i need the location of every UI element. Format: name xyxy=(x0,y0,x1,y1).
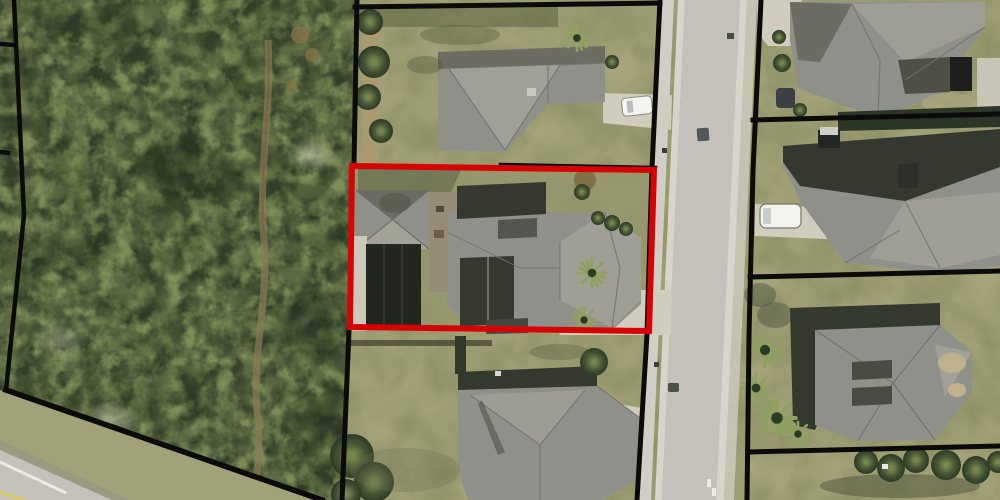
hedge xyxy=(455,336,466,374)
dark-car xyxy=(776,88,795,108)
white-car-driveway-north xyxy=(621,95,653,116)
object-on-road xyxy=(697,128,710,142)
tree-shadow xyxy=(757,302,793,328)
tree xyxy=(369,119,393,143)
lawn-shadow xyxy=(350,448,460,492)
roadside-speck xyxy=(727,33,734,39)
palm-tree xyxy=(578,259,606,287)
chimney xyxy=(950,57,972,91)
tree-shadow xyxy=(407,56,443,74)
aerial-map xyxy=(0,0,1000,500)
tree xyxy=(358,46,390,78)
boundary-stub-1 xyxy=(0,44,13,45)
boundary-stub-2 xyxy=(0,152,8,153)
palm-tree xyxy=(564,25,589,50)
tree xyxy=(357,9,383,35)
mailbox xyxy=(654,362,659,367)
shrub xyxy=(793,103,807,117)
shrub xyxy=(773,54,791,72)
tree-shadow xyxy=(420,25,500,45)
patio xyxy=(948,383,966,397)
pool-screen-enclosure xyxy=(366,244,421,328)
shrub xyxy=(619,222,633,236)
skylight xyxy=(527,88,536,96)
house-east-north-parcel[interactable] xyxy=(757,0,1000,120)
object-on-road xyxy=(668,383,679,392)
fence-shadow xyxy=(350,340,492,346)
shrub xyxy=(605,55,619,69)
tree-shadow xyxy=(379,193,411,213)
white-van-driveway-east xyxy=(760,204,801,228)
rooftop-vent xyxy=(495,371,501,376)
lawn-shadow xyxy=(530,344,590,360)
shrub xyxy=(591,211,605,225)
shrub xyxy=(772,30,786,44)
mailbox xyxy=(662,148,667,153)
palm-tree xyxy=(749,334,782,367)
tree xyxy=(574,184,590,200)
tree xyxy=(355,84,381,110)
shrub xyxy=(604,215,620,231)
patio xyxy=(938,353,966,373)
palm-tree xyxy=(786,422,810,446)
boundary-center-west-upper xyxy=(354,0,357,164)
aerial-map-viewport xyxy=(0,0,1000,500)
